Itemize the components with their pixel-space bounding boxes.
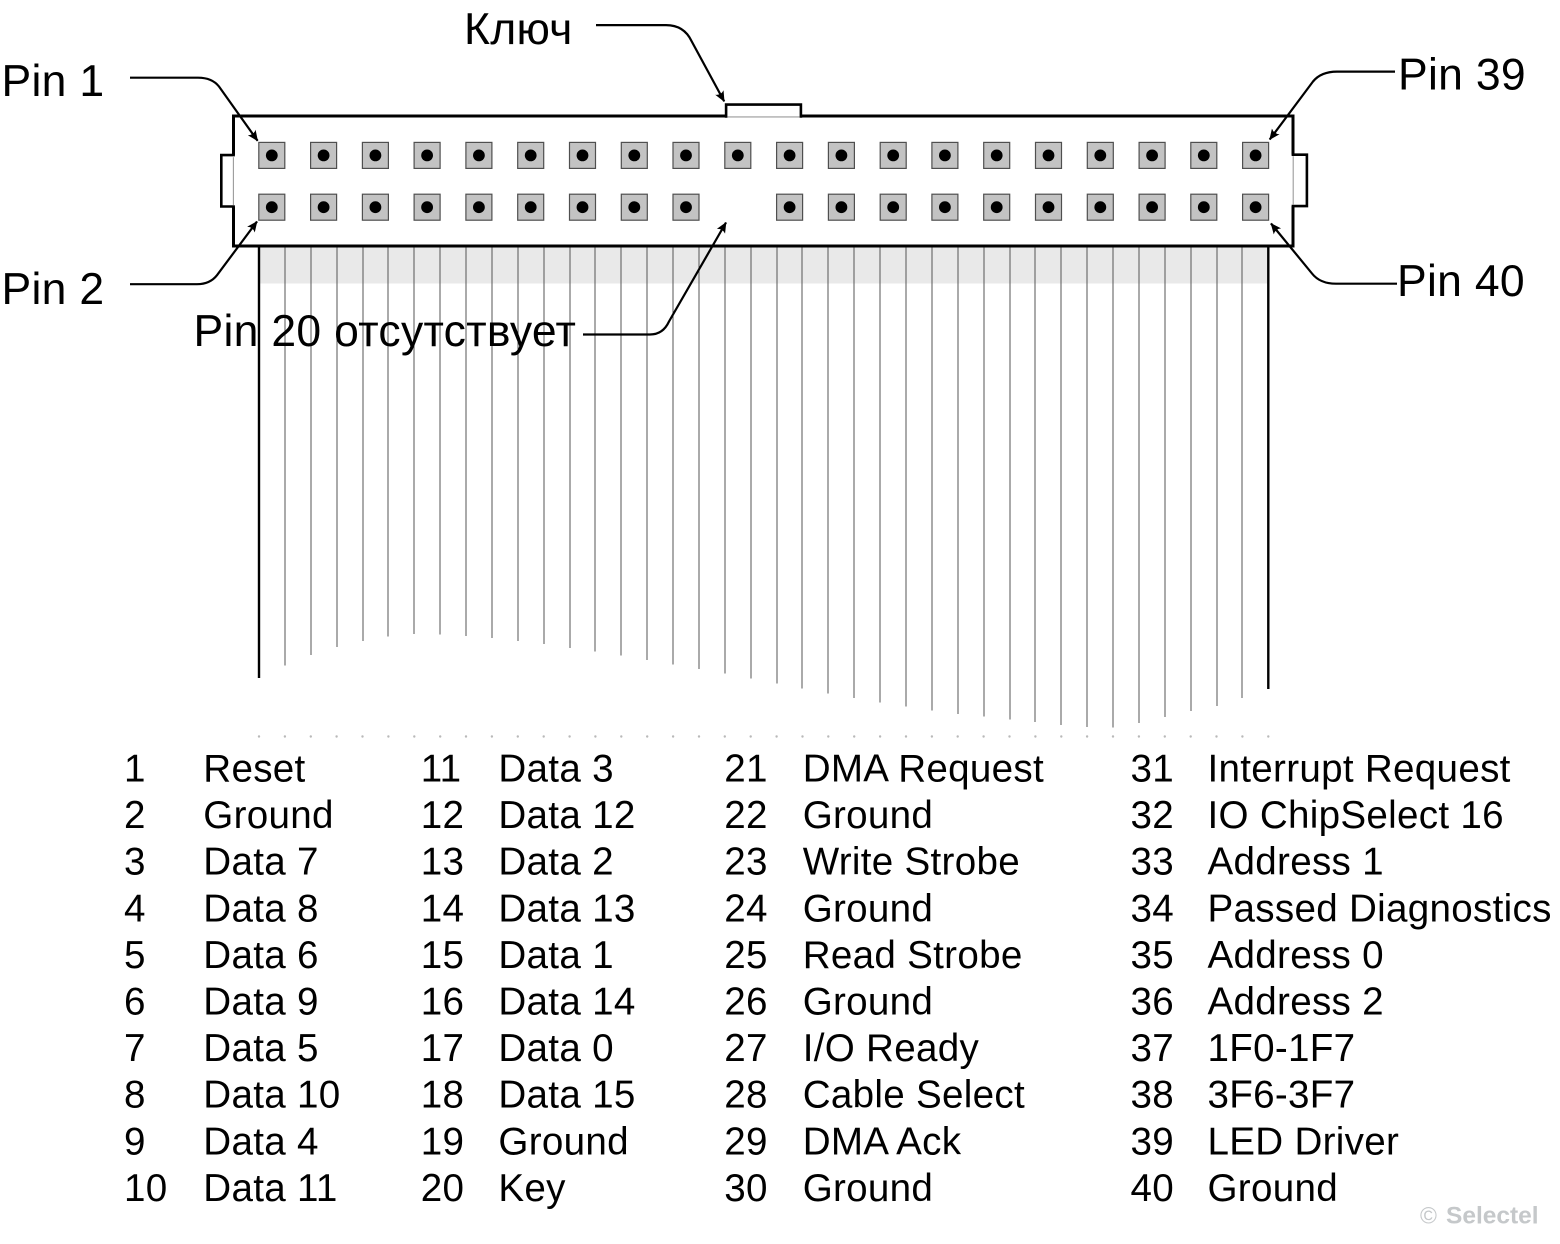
svg-text:Pin 40: Pin 40 — [1397, 257, 1525, 306]
svg-text:33: 33 — [1131, 841, 1175, 884]
svg-text:Cable Select: Cable Select — [803, 1074, 1025, 1117]
svg-text:4: 4 — [124, 887, 146, 930]
svg-text:16: 16 — [421, 981, 465, 1024]
svg-text:Pin 39: Pin 39 — [1398, 51, 1526, 100]
svg-text:Pin 20 отсутствует: Pin 20 отсутствует — [194, 307, 577, 356]
svg-text:37: 37 — [1131, 1027, 1175, 1070]
svg-text:29: 29 — [724, 1120, 768, 1163]
svg-text:35: 35 — [1131, 934, 1175, 977]
svg-text:3: 3 — [124, 841, 146, 884]
svg-text:Ground: Ground — [498, 1120, 628, 1163]
svg-text:Data 8: Data 8 — [203, 887, 318, 930]
svg-text:Ground: Ground — [803, 981, 933, 1024]
svg-text:21: 21 — [724, 748, 768, 791]
svg-text:24: 24 — [724, 887, 768, 930]
svg-text:5: 5 — [124, 934, 146, 977]
svg-text:Data 6: Data 6 — [203, 934, 318, 977]
svg-text:28: 28 — [724, 1074, 768, 1117]
svg-text:8: 8 — [124, 1074, 146, 1117]
svg-text:Passed Diagnostics: Passed Diagnostics — [1208, 887, 1552, 930]
svg-text:Ground: Ground — [803, 794, 933, 837]
svg-text:17: 17 — [421, 1027, 465, 1070]
svg-text:Pin 2: Pin 2 — [2, 265, 105, 314]
svg-text:Address 0: Address 0 — [1208, 934, 1384, 977]
svg-text:27: 27 — [724, 1027, 768, 1070]
svg-text:36: 36 — [1131, 981, 1175, 1024]
svg-text:34: 34 — [1131, 887, 1175, 930]
svg-text:©: © — [1420, 1203, 1437, 1229]
svg-text:I/O Ready: I/O Ready — [803, 1027, 980, 1070]
svg-text:1F0-1F7: 1F0-1F7 — [1208, 1027, 1356, 1070]
svg-text:Write Strobe: Write Strobe — [803, 841, 1020, 884]
svg-text:19: 19 — [421, 1120, 465, 1163]
svg-text:Ключ: Ключ — [464, 5, 573, 54]
svg-text:10: 10 — [124, 1167, 168, 1210]
svg-text:Reset: Reset — [203, 748, 305, 791]
svg-text:26: 26 — [724, 981, 768, 1024]
svg-text:Read Strobe: Read Strobe — [803, 934, 1023, 977]
svg-text:Address 2: Address 2 — [1208, 981, 1384, 1024]
svg-text:Ground: Ground — [803, 1167, 933, 1210]
svg-text:Data 10: Data 10 — [203, 1074, 340, 1117]
svg-text:31: 31 — [1131, 748, 1175, 791]
svg-text:Data 5: Data 5 — [203, 1027, 318, 1070]
svg-text:18: 18 — [421, 1074, 465, 1117]
svg-text:DMA Ack: DMA Ack — [803, 1120, 962, 1163]
svg-text:Key: Key — [498, 1167, 566, 1210]
svg-text:Interrupt Request: Interrupt Request — [1208, 748, 1511, 791]
svg-text:Selectel: Selectel — [1446, 1203, 1539, 1230]
svg-text:2: 2 — [124, 794, 146, 837]
svg-text:20: 20 — [421, 1167, 465, 1210]
svg-text:Ground: Ground — [203, 794, 333, 837]
svg-text:Ground: Ground — [1208, 1167, 1338, 1210]
svg-text:Data 13: Data 13 — [498, 887, 635, 930]
svg-text:Data 2: Data 2 — [498, 841, 613, 884]
svg-text:Data 14: Data 14 — [498, 981, 635, 1024]
svg-text:38: 38 — [1131, 1074, 1175, 1117]
svg-text:Ground: Ground — [803, 887, 933, 930]
svg-text:Pin 1: Pin 1 — [2, 57, 105, 106]
svg-text:LED Driver: LED Driver — [1208, 1120, 1400, 1163]
svg-text:Data 9: Data 9 — [203, 981, 318, 1024]
svg-text:30: 30 — [724, 1167, 768, 1210]
svg-text:3F6-3F7: 3F6-3F7 — [1208, 1074, 1356, 1117]
svg-text:1: 1 — [124, 748, 146, 791]
svg-text:12: 12 — [421, 794, 465, 837]
svg-text:Data 3: Data 3 — [498, 748, 613, 791]
svg-text:11: 11 — [421, 748, 462, 791]
svg-text:Data 12: Data 12 — [498, 794, 635, 837]
svg-text:32: 32 — [1131, 794, 1175, 837]
svg-text:23: 23 — [724, 841, 768, 884]
svg-text:39: 39 — [1131, 1120, 1175, 1163]
svg-text:Data 0: Data 0 — [498, 1027, 613, 1070]
svg-text:22: 22 — [724, 794, 768, 837]
svg-text:25: 25 — [724, 934, 768, 977]
svg-text:13: 13 — [421, 841, 465, 884]
svg-text:Data 11: Data 11 — [203, 1167, 337, 1210]
svg-text:Data 15: Data 15 — [498, 1074, 635, 1117]
svg-text:Address 1: Address 1 — [1208, 841, 1384, 884]
svg-text:15: 15 — [421, 934, 465, 977]
svg-text:Data 1: Data 1 — [498, 934, 613, 977]
svg-text:DMA Request: DMA Request — [803, 748, 1044, 791]
svg-text:IO ChipSelect 16: IO ChipSelect 16 — [1208, 794, 1504, 837]
svg-text:Data 7: Data 7 — [203, 841, 318, 884]
svg-text:40: 40 — [1131, 1167, 1175, 1210]
svg-text:14: 14 — [421, 887, 465, 930]
svg-text:6: 6 — [124, 981, 146, 1024]
svg-text:9: 9 — [124, 1120, 146, 1163]
svg-text:Data 4: Data 4 — [203, 1120, 318, 1163]
svg-text:7: 7 — [124, 1027, 146, 1070]
